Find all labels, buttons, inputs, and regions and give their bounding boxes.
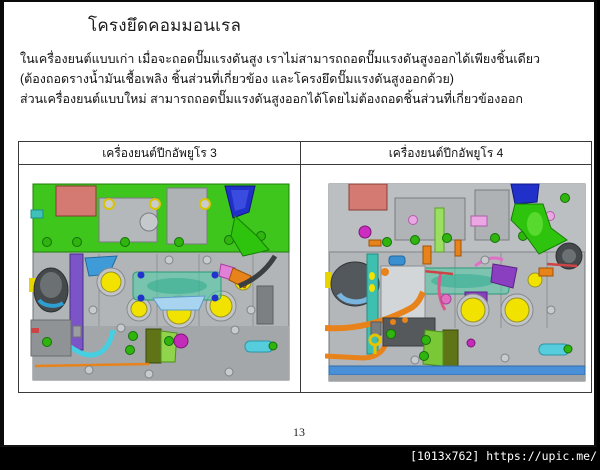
- euro3-engine-diagram: [29, 178, 295, 391]
- valve-cover: [349, 184, 387, 210]
- watermark-text: [1013x762] https://upic.me/: [410, 449, 597, 463]
- sensor-magenta: [174, 334, 188, 348]
- euro4-engine-diagram: [325, 180, 591, 391]
- pump-lower-left: [31, 320, 71, 356]
- page-title: โครงยึดคอมมอนเรล: [88, 12, 241, 39]
- connector-teal: [539, 344, 572, 355]
- body-line-2: (ต้องถอดรางน้ำมันเชื้อเพลิง ชิ้นส่วนที่เ…: [20, 69, 585, 89]
- slide-page: โครงยึดคอมมอนเรล ในเครื่องยนต์แบบเก่า เม…: [0, 0, 597, 447]
- table-header-euro3: เครื่องยนต์ปีกอัพยูโร 3: [19, 142, 301, 164]
- body-line-3: ส่วนเครื่องยนต์แบบใหม่ สามารถถอดปั๊มแรงด…: [20, 89, 585, 109]
- cylinder-orange-2: [455, 240, 461, 256]
- sensor-magenta: [467, 339, 475, 347]
- table-header-row: เครื่องยนต์ปีกอัพยูโร 3 เครื่องยนต์ปีกอั…: [19, 142, 591, 165]
- body-line-1: ในเครื่องยนต์แบบเก่า เมื่อจะถอดปั๊มแรงดั…: [20, 49, 585, 69]
- strip-blue-bottom: [329, 366, 585, 375]
- cylinder-orange-3: [423, 246, 431, 264]
- body-paragraph: ในเครื่องยนต์แบบเก่า เมื่อจะถอดปั๊มแรงดั…: [20, 49, 585, 109]
- strip-light-green: [435, 208, 444, 252]
- valve-cover: [56, 186, 96, 216]
- page-number: 13: [4, 425, 594, 440]
- cylinder-orange-1: [369, 240, 381, 246]
- connector-orange-right: [539, 268, 553, 276]
- table-header-euro4: เครื่องยนต์ปีกอัพยูโร 4: [301, 142, 591, 164]
- connector-teal: [245, 341, 277, 352]
- pump-bracket-olive: [420, 330, 459, 366]
